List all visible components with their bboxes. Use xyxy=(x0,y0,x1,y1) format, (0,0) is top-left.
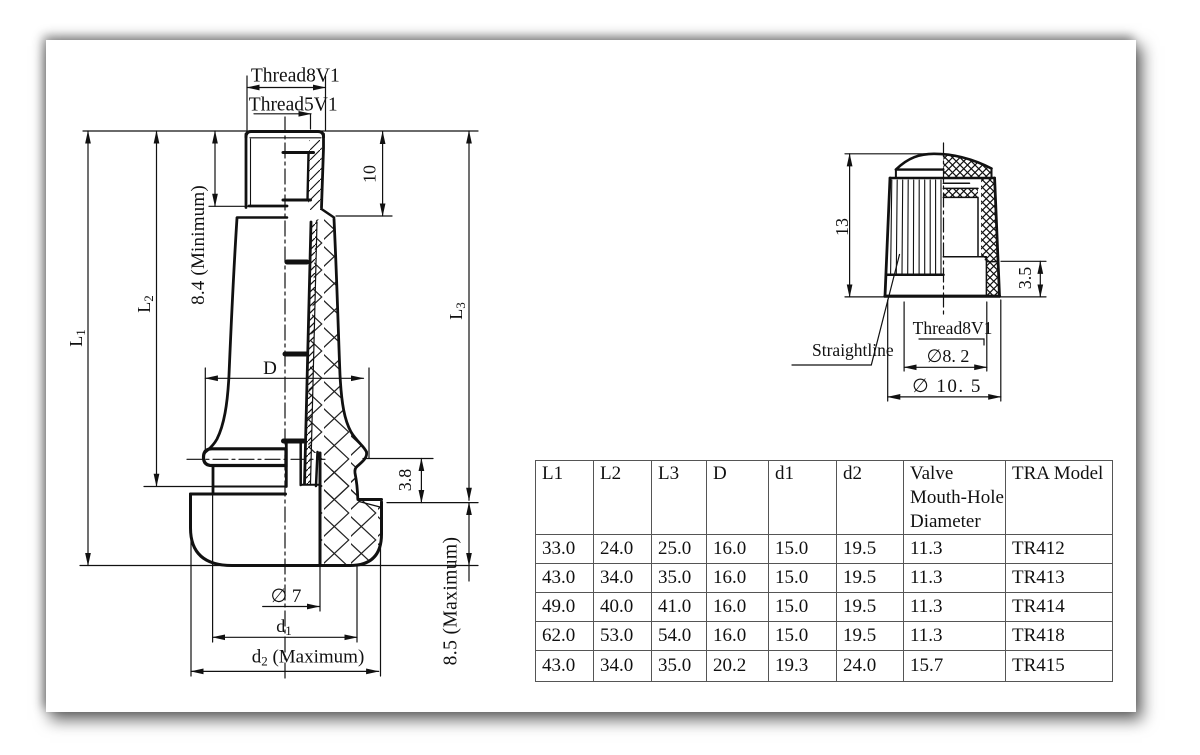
svg-text:10: 10 xyxy=(360,165,380,183)
svg-text:∅ 10. 5: ∅ 10. 5 xyxy=(912,376,982,397)
svg-text:Thread5V1: Thread5V1 xyxy=(249,95,338,116)
svg-text:3.8: 3.8 xyxy=(395,469,415,492)
svg-text:∅ 7: ∅ 7 xyxy=(271,586,302,607)
svg-text:8.4 (Minimum): 8.4 (Minimum) xyxy=(188,185,209,305)
svg-text:8.5 (Maximum): 8.5 (Maximum) xyxy=(441,537,462,666)
svg-text:Thread8V1: Thread8V1 xyxy=(251,66,340,87)
svg-text:Straightline: Straightline xyxy=(812,340,894,360)
svg-text:L1: L1 xyxy=(66,329,88,347)
svg-text:Thread8V1: Thread8V1 xyxy=(913,318,993,338)
svg-text:D: D xyxy=(263,358,277,379)
svg-text:L3: L3 xyxy=(446,302,468,320)
svg-text:d2 (Maximum): d2 (Maximum) xyxy=(252,647,365,669)
svg-text:∅8. 2: ∅8. 2 xyxy=(927,346,970,366)
svg-text:L2: L2 xyxy=(134,295,156,313)
svg-text:13: 13 xyxy=(832,218,852,236)
svg-text:3.5: 3.5 xyxy=(1015,267,1035,290)
svg-text:d1: d1 xyxy=(276,616,292,638)
